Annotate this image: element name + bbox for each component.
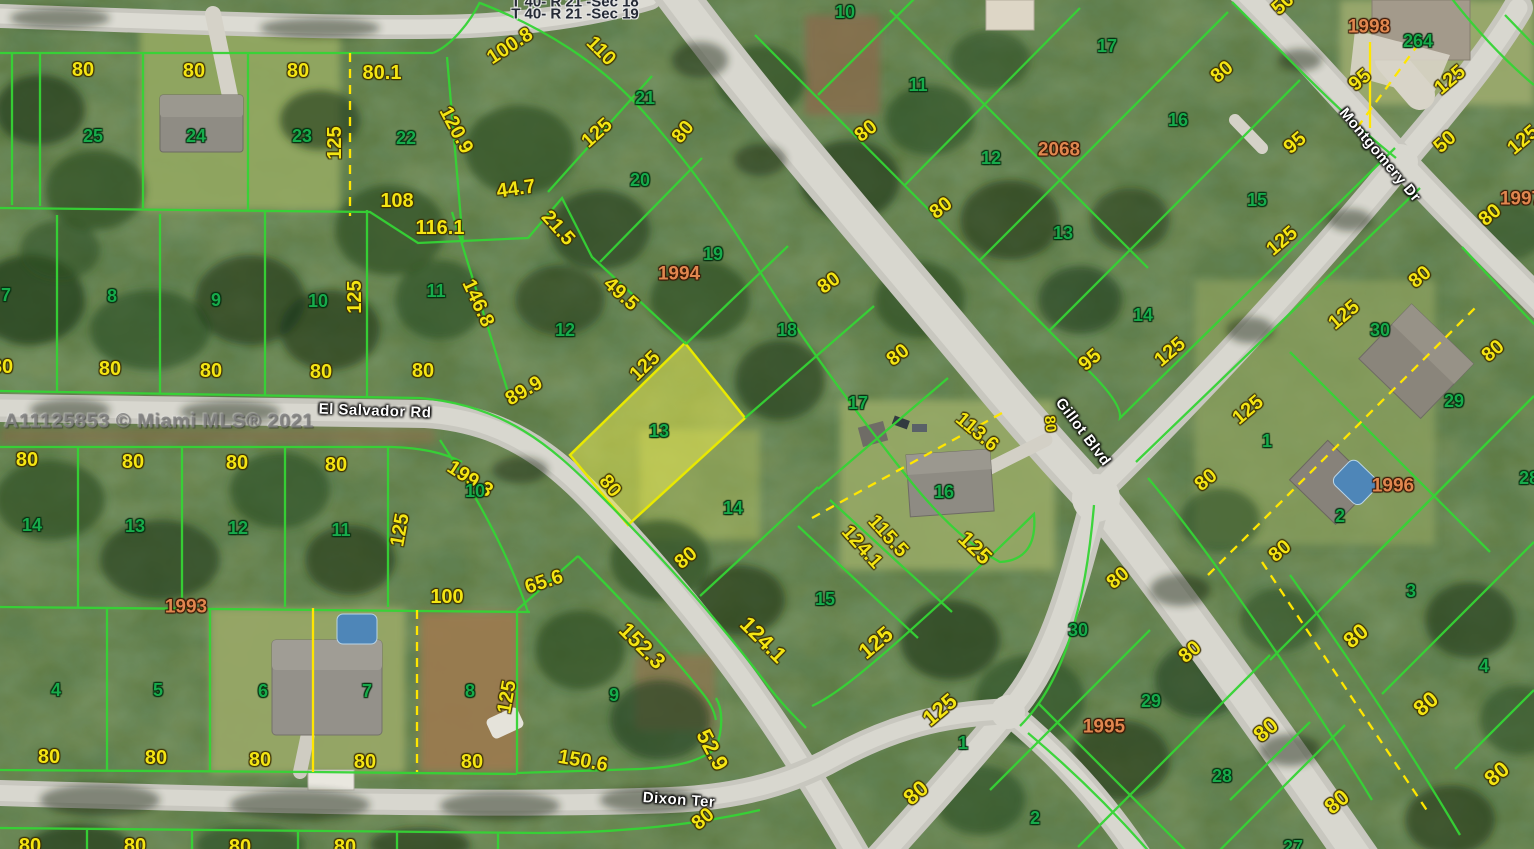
mls-watermark: A11125853 © Miami MLS® 2021 <box>4 411 314 434</box>
aerial-map: T 40- R 21 -Sec 18T 40- R 21 -Sec 19El S… <box>0 0 1534 849</box>
